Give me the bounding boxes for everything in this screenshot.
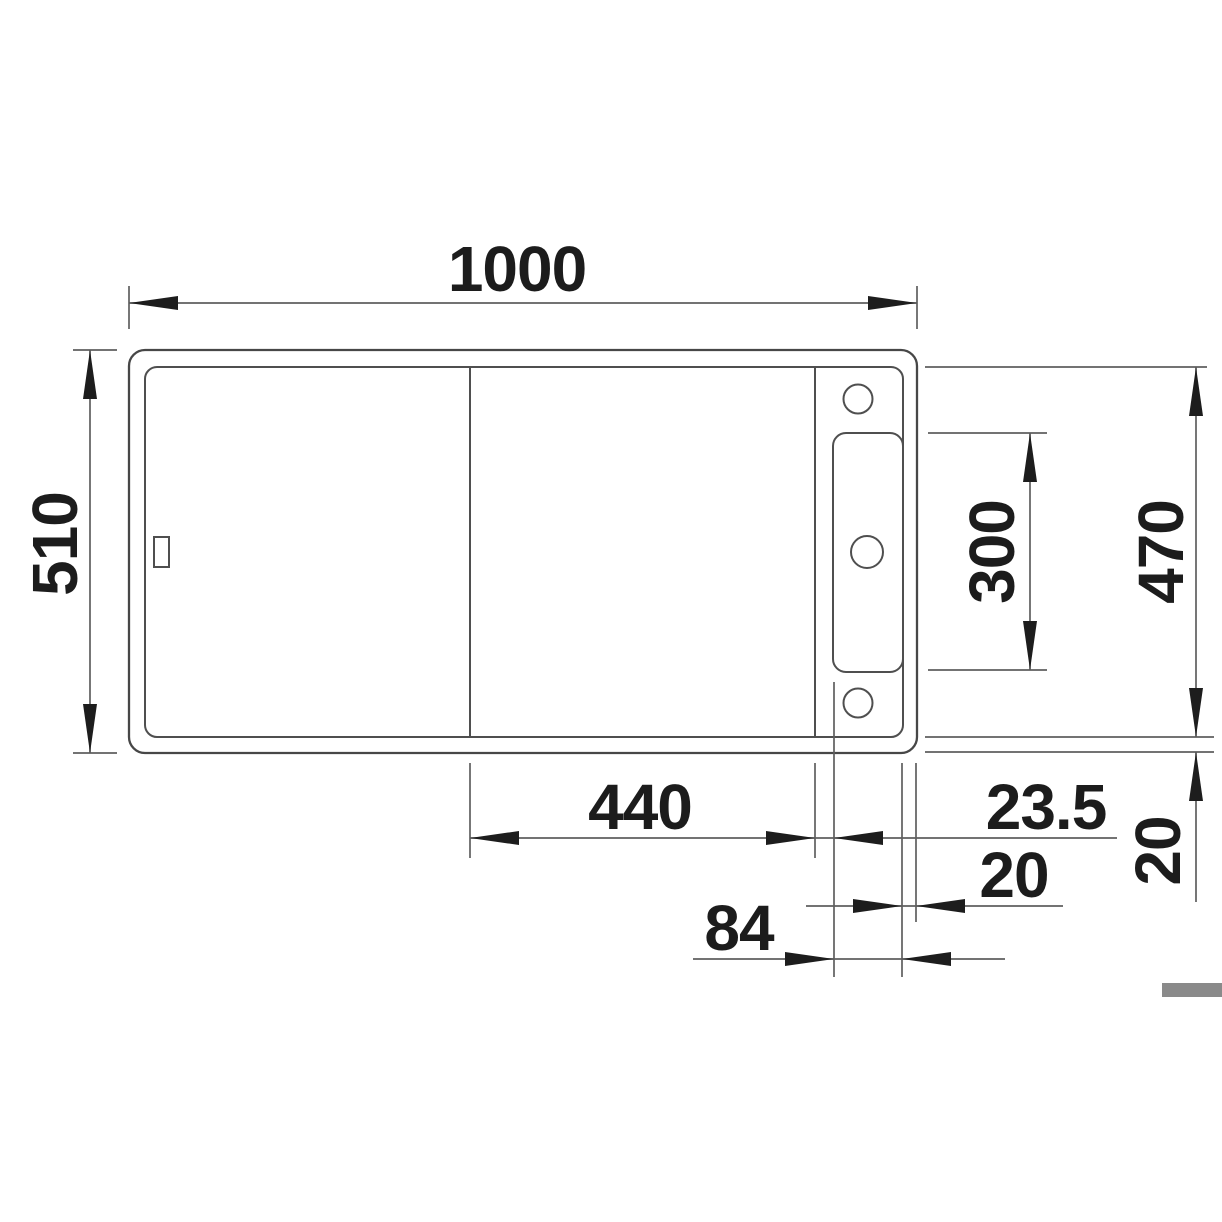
dimension-label-inner-depth: 470 [1125,500,1197,604]
tap-hole-top [844,385,873,414]
bottom-extension-lines [470,682,916,977]
dimension-label-overall-width: 1000 [448,233,586,305]
arrow-head-left [853,899,902,913]
dimension-label-overall-depth: 510 [19,492,91,596]
dimension-label-bowl-to-rail-gap: 23.5 [986,771,1107,843]
arrow-head-left [785,952,834,966]
tap-hole-middle [851,536,883,568]
arrow-head-top [1023,433,1037,482]
sink-technical-drawing: 1000 510 470 300 20 [0,0,1222,1222]
sink-outer-outline [129,350,917,753]
arrow-head-right [766,831,815,845]
arrow-head-gap [834,831,883,845]
arrow-head-top [83,350,97,399]
dimension-label-rim-width: 20 [1122,816,1194,885]
arrow-head-right [916,899,965,913]
dimension-rail-to-edge: 20 [806,839,1063,913]
dimension-label-bowl-width: 440 [588,771,692,843]
arrow-head-right [868,296,917,310]
sink-inner-rim [145,367,903,737]
dimension-bowl-width-and-gap: 440 23.5 [470,771,1117,845]
arrow-head-bottom [1023,621,1037,670]
tap-hole-bottom [844,689,873,718]
overflow-mark [154,537,169,567]
arrow-head-top [1189,367,1203,416]
arrow-head-right [902,952,951,966]
dimension-label-rail-zone-width: 84 [704,892,775,964]
scrollbar-thumb-fragment[interactable] [1162,983,1222,997]
accessory-rail-recess [833,433,903,672]
sink-plan-view [129,350,917,753]
arrow-head-left [470,831,519,845]
dimension-rail-cutout-length: 300 [928,433,1047,670]
dimension-overall-depth: 510 [19,350,117,753]
arrow-head-bottom [83,704,97,753]
dimension-overall-width: 1000 [129,233,917,329]
arrow-head-up [1189,752,1203,801]
drawing-svg: 1000 510 470 300 20 [0,0,1222,1222]
dimension-label-rail-cutout-length: 300 [956,500,1028,604]
arrow-head-left [129,296,178,310]
dimension-label-rail-to-edge-gap: 20 [979,839,1048,911]
arrow-head-bottom [1189,688,1203,737]
